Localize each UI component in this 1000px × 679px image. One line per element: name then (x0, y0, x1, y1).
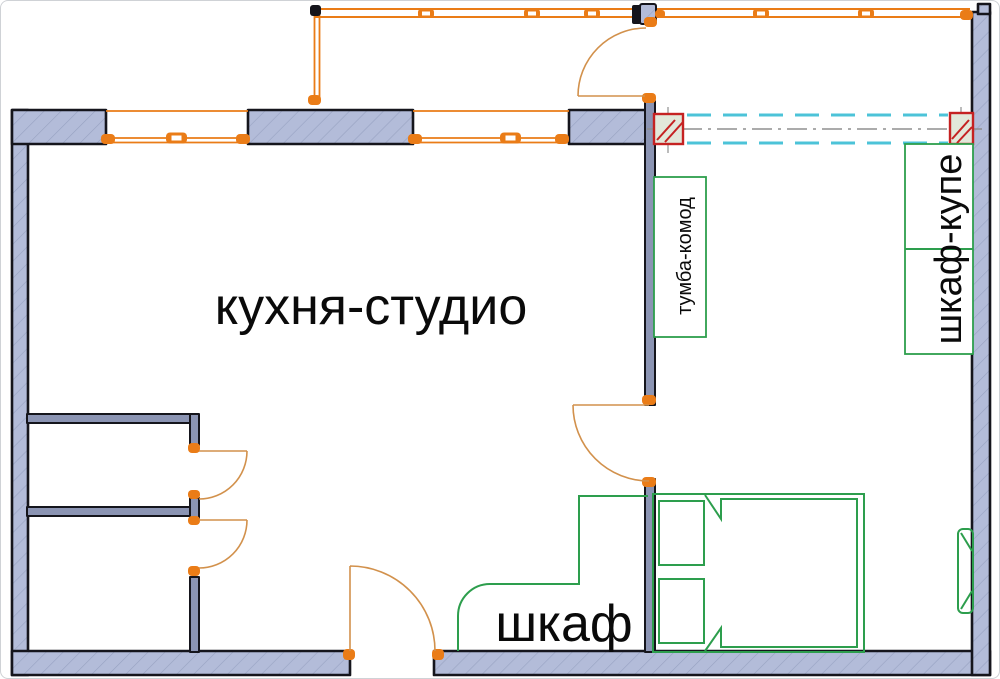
floor-plan-drawing: кухня-студио шкаф тумба-комод шкаф-купе (1, 1, 1000, 679)
partition-top-jamb (642, 93, 656, 103)
balcony-door-jamb-b (655, 10, 665, 18)
left-wall (12, 110, 28, 675)
bath-wall-top-return (190, 414, 199, 445)
bed-mattress (705, 495, 857, 651)
outer-walls (12, 4, 990, 675)
bed-frame (653, 494, 864, 652)
balcony-corner-post (310, 5, 321, 16)
bedroom-door-jamb-bottom (642, 477, 656, 487)
balcony-sash-2-inner (528, 12, 536, 16)
furniture (458, 144, 973, 652)
interior-walls (27, 101, 655, 652)
front-wall-pier-3 (569, 110, 649, 144)
right-wall-notch (978, 4, 990, 14)
bedroom-door-swing (573, 405, 649, 481)
window-2 (408, 111, 569, 144)
balcony-sash-3-inner (588, 12, 596, 16)
window-1-jamb-right (236, 134, 250, 144)
front-wall-pier-1 (12, 110, 106, 144)
bottom-wall-left (12, 651, 350, 675)
balcony-sash-4-inner (757, 12, 765, 16)
sliding-wardrobe-label: шкаф-купе (928, 154, 970, 345)
balcony-right-jamb (960, 10, 973, 20)
entry-door-swing (350, 566, 435, 651)
bath-door-2-jamb-bottom (188, 566, 200, 576)
bath-door-1-jamb-top (188, 443, 200, 453)
bath-door-1-jamb-bottom (188, 490, 200, 499)
balcony-side-jamb (308, 95, 321, 105)
kitchen-studio-label: кухня-студио (215, 278, 528, 336)
balcony-door-jamb-a (644, 17, 657, 27)
bath-door-2-swing (199, 520, 247, 568)
window-1-jamb-left (101, 134, 115, 144)
balcony-glazing (308, 4, 973, 105)
balcony-sash-5-inner (862, 12, 870, 16)
bath-door-2-jamb-top (188, 516, 200, 525)
bath-wall-middle-end (190, 498, 199, 518)
balcony-door-swing (578, 28, 646, 96)
bath-door-1-swing (199, 451, 247, 499)
bottom-wall-right (434, 651, 990, 675)
bed-pillow-1 (659, 501, 704, 565)
bath-wall-bottom-stub (190, 577, 199, 652)
right-wall (972, 12, 990, 675)
window-2-jamb-left (408, 134, 422, 144)
entry-door-jamb-right (432, 649, 444, 660)
front-wall-pier-2 (248, 110, 413, 144)
window-2-jamb-right (555, 134, 569, 144)
entry-door-jamb-left (343, 649, 355, 660)
wardrobe-label: шкаф (495, 595, 632, 653)
window-1 (101, 111, 250, 144)
bedroom-door-jamb-top (642, 395, 656, 405)
bath-wall-top (27, 414, 191, 423)
window-1-sash-inner (172, 136, 182, 141)
floor-plan-canvas: кухня-студио шкаф тумба-комод шкаф-купе (0, 0, 1000, 679)
bed-pillow-2 (659, 579, 704, 643)
balcony-sash-1-inner (422, 12, 430, 16)
door-jambs (188, 93, 656, 660)
dresser-label: тумба-комод (674, 197, 696, 315)
window-2-sash-inner (506, 136, 516, 141)
wall-tv-bracket (961, 533, 972, 609)
bath-wall-middle (27, 507, 191, 516)
